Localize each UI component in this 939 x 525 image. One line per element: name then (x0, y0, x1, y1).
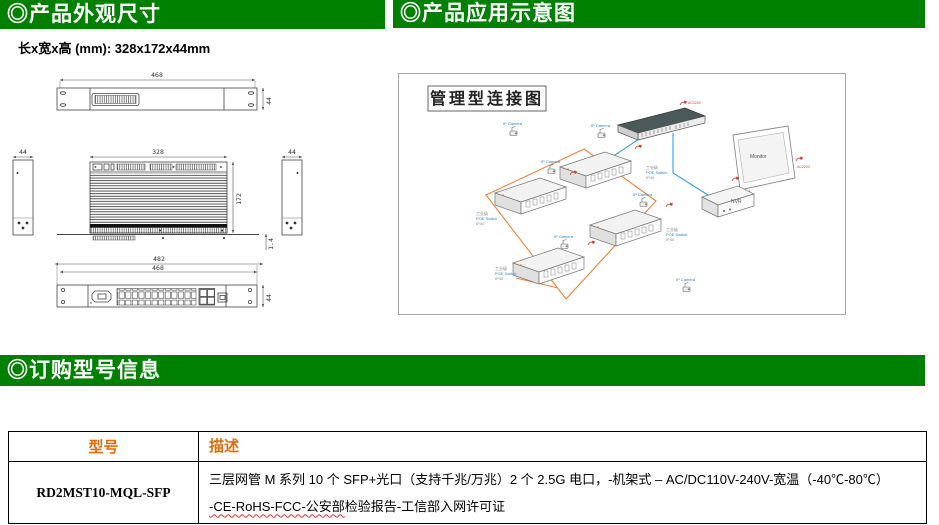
top-view-width-dim: 328 (152, 148, 164, 156)
ordering-table: 型号 描述 RD2MST10-MQL-SFP 三层网管 M 系列 10 个 SF… (8, 431, 927, 524)
front-view-drawing: 482 468 44 (55, 255, 273, 307)
section-header-application: ◎产品应用示意图 (393, 0, 925, 28)
column-header-model: 型号 (9, 432, 199, 462)
svg-text:IP40: IP40 (495, 276, 504, 281)
table-header-row: 型号 描述 (9, 432, 927, 462)
svg-text:IP40: IP40 (646, 175, 655, 180)
top-view-drawing: 328 172 1.4 (57, 148, 275, 250)
svg-text:IP Camera: IP Camera (503, 121, 523, 126)
side-view-right-drawing: 44 (282, 148, 302, 235)
top-view-thickness-dim: 1.4 (267, 238, 275, 250)
application-diagram: 管理型连接图 AC220V Monitor AC220V NVR (398, 73, 846, 315)
rj45-port-block (117, 289, 196, 306)
nvr-label: NVR (731, 199, 742, 205)
monitor-label: Monitor (750, 154, 767, 160)
front-view-outer-dim: 482 (153, 255, 165, 263)
model-cell: RD2MST10-MQL-SFP (9, 462, 199, 524)
model-number: RD2MST10-MQL-SFP (36, 485, 170, 500)
table-row: RD2MST10-MQL-SFP 三层网管 M 系列 10 个 SFP+光口（支… (9, 462, 927, 524)
monitor: Monitor (733, 126, 795, 190)
svg-text:IP Camera: IP Camera (554, 234, 574, 239)
diagram-title: 管理型连接图 (430, 89, 544, 108)
back-view-height-dim: 44 (265, 97, 273, 105)
section-header-ordering: ◎订购型号信息 (0, 355, 925, 386)
section-header-appearance: ◎产品外观尺寸 (0, 0, 385, 29)
description-cell: 三层网管 M 系列 10 个 SFP+光口（支持千兆/万兆）2 个 2.5G 电… (199, 462, 927, 524)
top-view-depth-dim: 172 (235, 193, 243, 205)
svg-text:IP Camera: IP Camera (591, 123, 611, 128)
front-view-inner-dim: 468 (152, 264, 164, 272)
side-right-width-dim: 44 (288, 148, 296, 156)
column-header-description: 描述 (199, 432, 927, 462)
dimensions-note: 长x宽x高 (mm): 328x172x44mm (18, 38, 210, 57)
power-label: AC220V (797, 165, 811, 169)
side-view-left-drawing: 44 (13, 148, 33, 235)
power-label: AC220V (688, 101, 702, 105)
svg-text:IP40: IP40 (666, 237, 675, 242)
back-view-drawing: 468 44 (57, 71, 273, 110)
back-view-width-dim: 468 (151, 71, 163, 79)
svg-text:IP Camera: IP Camera (633, 192, 653, 197)
svg-text:IP Camera: IP Camera (676, 277, 696, 282)
svg-text:IP40: IP40 (476, 221, 485, 226)
description-line-2: -CE-RoHS-FCC-公安部检验报告-工信部入网许可证 (209, 493, 925, 520)
description-line-1: 三层网管 M 系列 10 个 SFP+光口（支持千兆/万兆）2 个 2.5G 电… (209, 466, 925, 493)
side-left-width-dim: 44 (19, 148, 27, 156)
front-view-height-dim: 44 (265, 294, 273, 302)
svg-text:IP Camera: IP Camera (541, 159, 561, 164)
dimension-drawings: 468 44 44 328 172 (0, 60, 330, 340)
